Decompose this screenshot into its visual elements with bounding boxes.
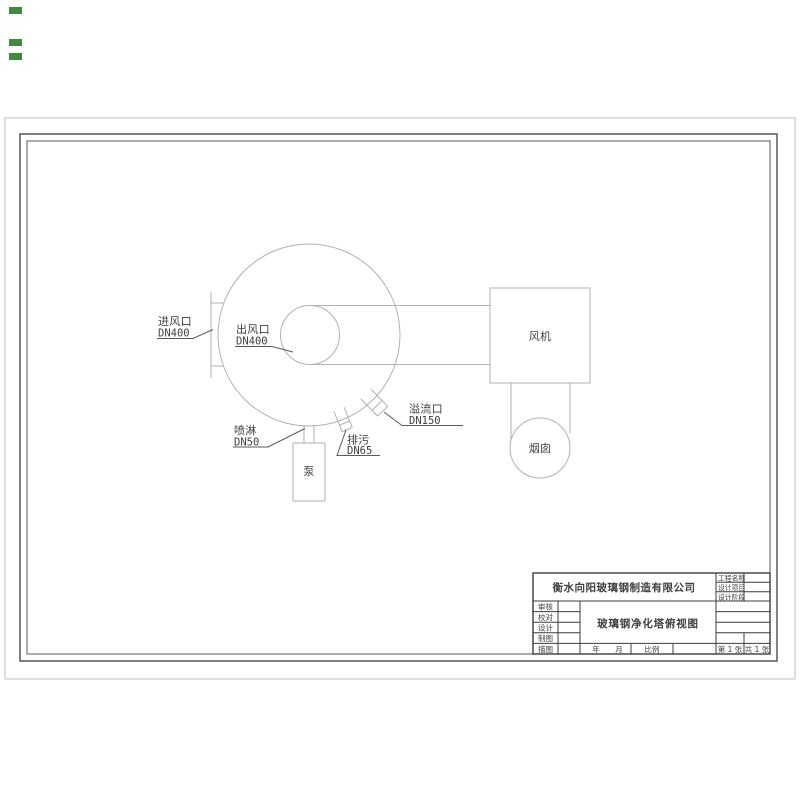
chimney-label: 烟囱	[529, 441, 552, 455]
inlet-dn: DN400	[158, 328, 190, 340]
outlet-label: 出风口	[236, 322, 270, 336]
role-drafted: 制图	[538, 633, 553, 643]
overflow-label: 溢流口	[409, 402, 443, 416]
sheet-outline	[5, 118, 795, 679]
sheet-total: 共 1 张	[745, 645, 770, 654]
role-traced: 描图	[538, 644, 553, 654]
overflow-dn: DN150	[409, 415, 441, 427]
company-name: 衡水向阳玻璃钢制造有限公司	[553, 581, 696, 594]
sheet-number: 第 1 张	[718, 644, 743, 654]
role-designed: 设计	[538, 623, 553, 633]
spray-dn: DN50	[234, 437, 259, 449]
outlet-dn: DN400	[236, 336, 268, 348]
drain-dn: DN65	[347, 445, 372, 457]
spray-label: 喷淋	[234, 424, 257, 437]
scale-label: 比例	[645, 644, 660, 654]
pump-label: 泵	[303, 465, 314, 478]
field-design-project: 设计项目	[718, 583, 745, 592]
month-label: 月	[615, 645, 623, 654]
role-proofread: 校对	[538, 612, 553, 622]
fan-label: 风机	[529, 329, 552, 343]
cad-drawing: 进风口 DN400 出风口 DN400 溢流口 DN150 排污 DN65 喷淋…	[0, 0, 800, 800]
drawing-title: 玻璃钢净化塔俯视图	[597, 617, 699, 630]
field-design-stage: 设计阶段	[718, 592, 745, 601]
role-reviewed: 审核	[538, 601, 553, 611]
year-label: 年	[592, 644, 600, 654]
field-project-name: 工程名称	[718, 574, 745, 583]
drawing-page: 进风口 DN400 出风口 DN400 溢流口 DN150 排污 DN65 喷淋…	[0, 0, 800, 800]
inlet-label: 进风口	[158, 315, 192, 328]
